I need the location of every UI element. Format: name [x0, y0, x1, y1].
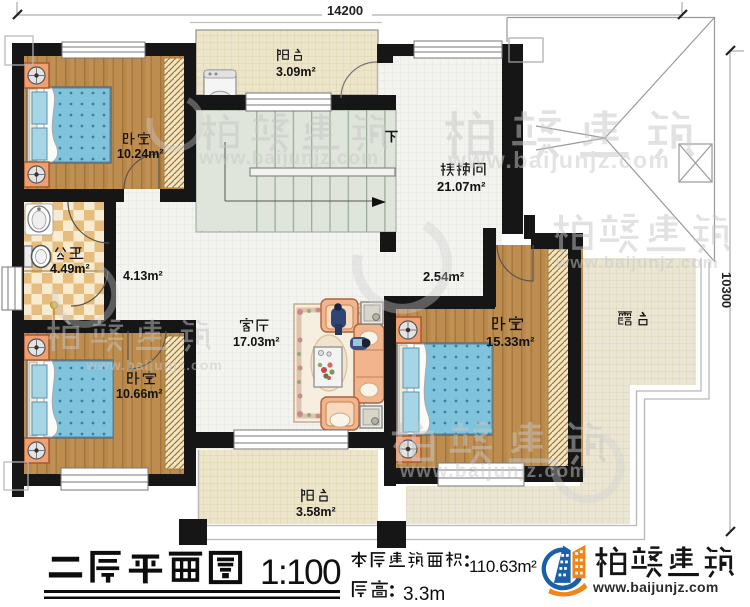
svg-text:3.09m²: 3.09m²	[276, 65, 316, 79]
svg-text:www.baijunjz.com: www.baijunjz.com	[85, 357, 223, 373]
svg-text:10.24m²: 10.24m²	[117, 147, 164, 161]
svg-text:110.63m²: 110.63m²	[469, 557, 537, 576]
svg-text:15.33m²: 15.33m²	[486, 334, 535, 349]
svg-text:www.baijunjz.com: www.baijunjz.com	[555, 253, 719, 272]
svg-text:10300: 10300	[719, 272, 734, 308]
svg-text:21.07m²: 21.07m²	[437, 179, 486, 194]
svg-text:3.58m²: 3.58m²	[296, 505, 336, 519]
svg-text:10.66m²: 10.66m²	[116, 387, 163, 401]
svg-text:3.3m: 3.3m	[403, 584, 445, 605]
svg-text:4.49m²: 4.49m²	[50, 262, 90, 276]
svg-text:1:100: 1:100	[260, 553, 341, 592]
svg-text:www.baijunjz.com: www.baijunjz.com	[592, 579, 719, 595]
svg-text:17.03m²: 17.03m²	[233, 335, 280, 349]
svg-text:www.baijunjz.com: www.baijunjz.com	[198, 148, 379, 169]
svg-text:4.13m²: 4.13m²	[123, 269, 163, 283]
svg-text:www.baijunjz.com: www.baijunjz.com	[447, 147, 671, 173]
svg-text:14200: 14200	[327, 3, 363, 18]
